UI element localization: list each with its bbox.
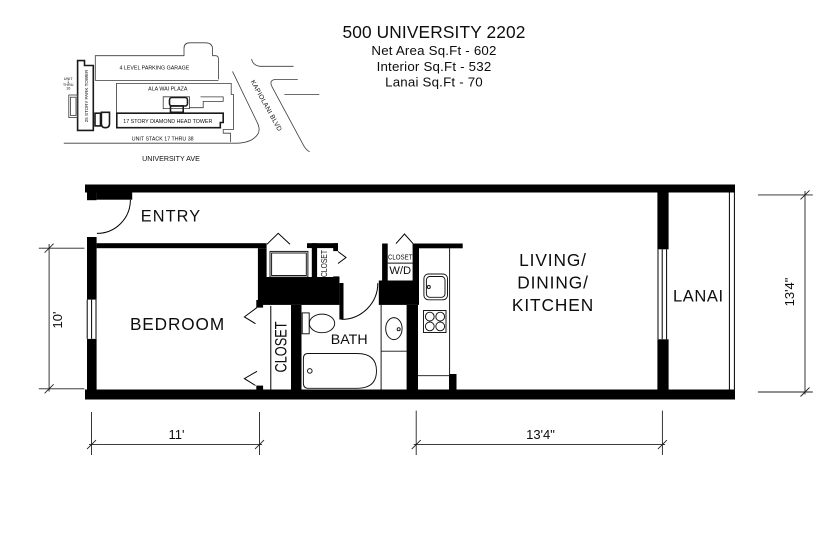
- svg-text:16: 16: [66, 86, 70, 90]
- svg-text:4 LEVEL PARKING GARAGE: 4 LEVEL PARKING GARAGE: [120, 65, 190, 71]
- svg-text:KITCHEN: KITCHEN: [512, 295, 594, 315]
- svg-text:UNIT STACK 17 THRU 38: UNIT STACK 17 THRU 38: [132, 136, 194, 142]
- svg-text:LIVING/: LIVING/: [519, 250, 587, 270]
- svg-text:CLOSET: CLOSET: [320, 250, 329, 277]
- svg-text:ENTRY: ENTRY: [141, 207, 201, 225]
- svg-text:Interior Sq.Ft - 532: Interior Sq.Ft - 532: [377, 59, 492, 74]
- svg-text:Lanai Sq.Ft - 70: Lanai Sq.Ft - 70: [385, 75, 483, 90]
- svg-text:CLOSET: CLOSET: [388, 254, 413, 261]
- svg-text:BATH: BATH: [331, 332, 368, 348]
- svg-text:DINING/: DINING/: [517, 273, 589, 293]
- svg-text:500 UNIVERSITY 2202: 500 UNIVERSITY 2202: [342, 22, 525, 42]
- svg-text:10': 10': [50, 312, 65, 329]
- svg-text:25 STORY PARK TOWER: 25 STORY PARK TOWER: [84, 69, 89, 122]
- svg-text:LANAI: LANAI: [673, 288, 724, 306]
- svg-text:ALA WAI PLAZA: ALA WAI PLAZA: [148, 87, 188, 93]
- svg-text:17 STORY DIAMOND HEAD TOWER: 17 STORY DIAMOND HEAD TOWER: [123, 119, 212, 125]
- svg-text:13'4": 13'4": [782, 277, 797, 306]
- svg-text:W/D: W/D: [389, 265, 411, 277]
- svg-text:13'4": 13'4": [526, 427, 555, 442]
- svg-text:11': 11': [169, 427, 185, 442]
- svg-text:CLOSET: CLOSET: [272, 322, 291, 373]
- svg-text:BEDROOM: BEDROOM: [130, 314, 225, 334]
- svg-text:UNIVERSITY AVE: UNIVERSITY AVE: [142, 155, 200, 163]
- svg-text:Net Area Sq.Ft - 602: Net Area Sq.Ft - 602: [371, 43, 496, 58]
